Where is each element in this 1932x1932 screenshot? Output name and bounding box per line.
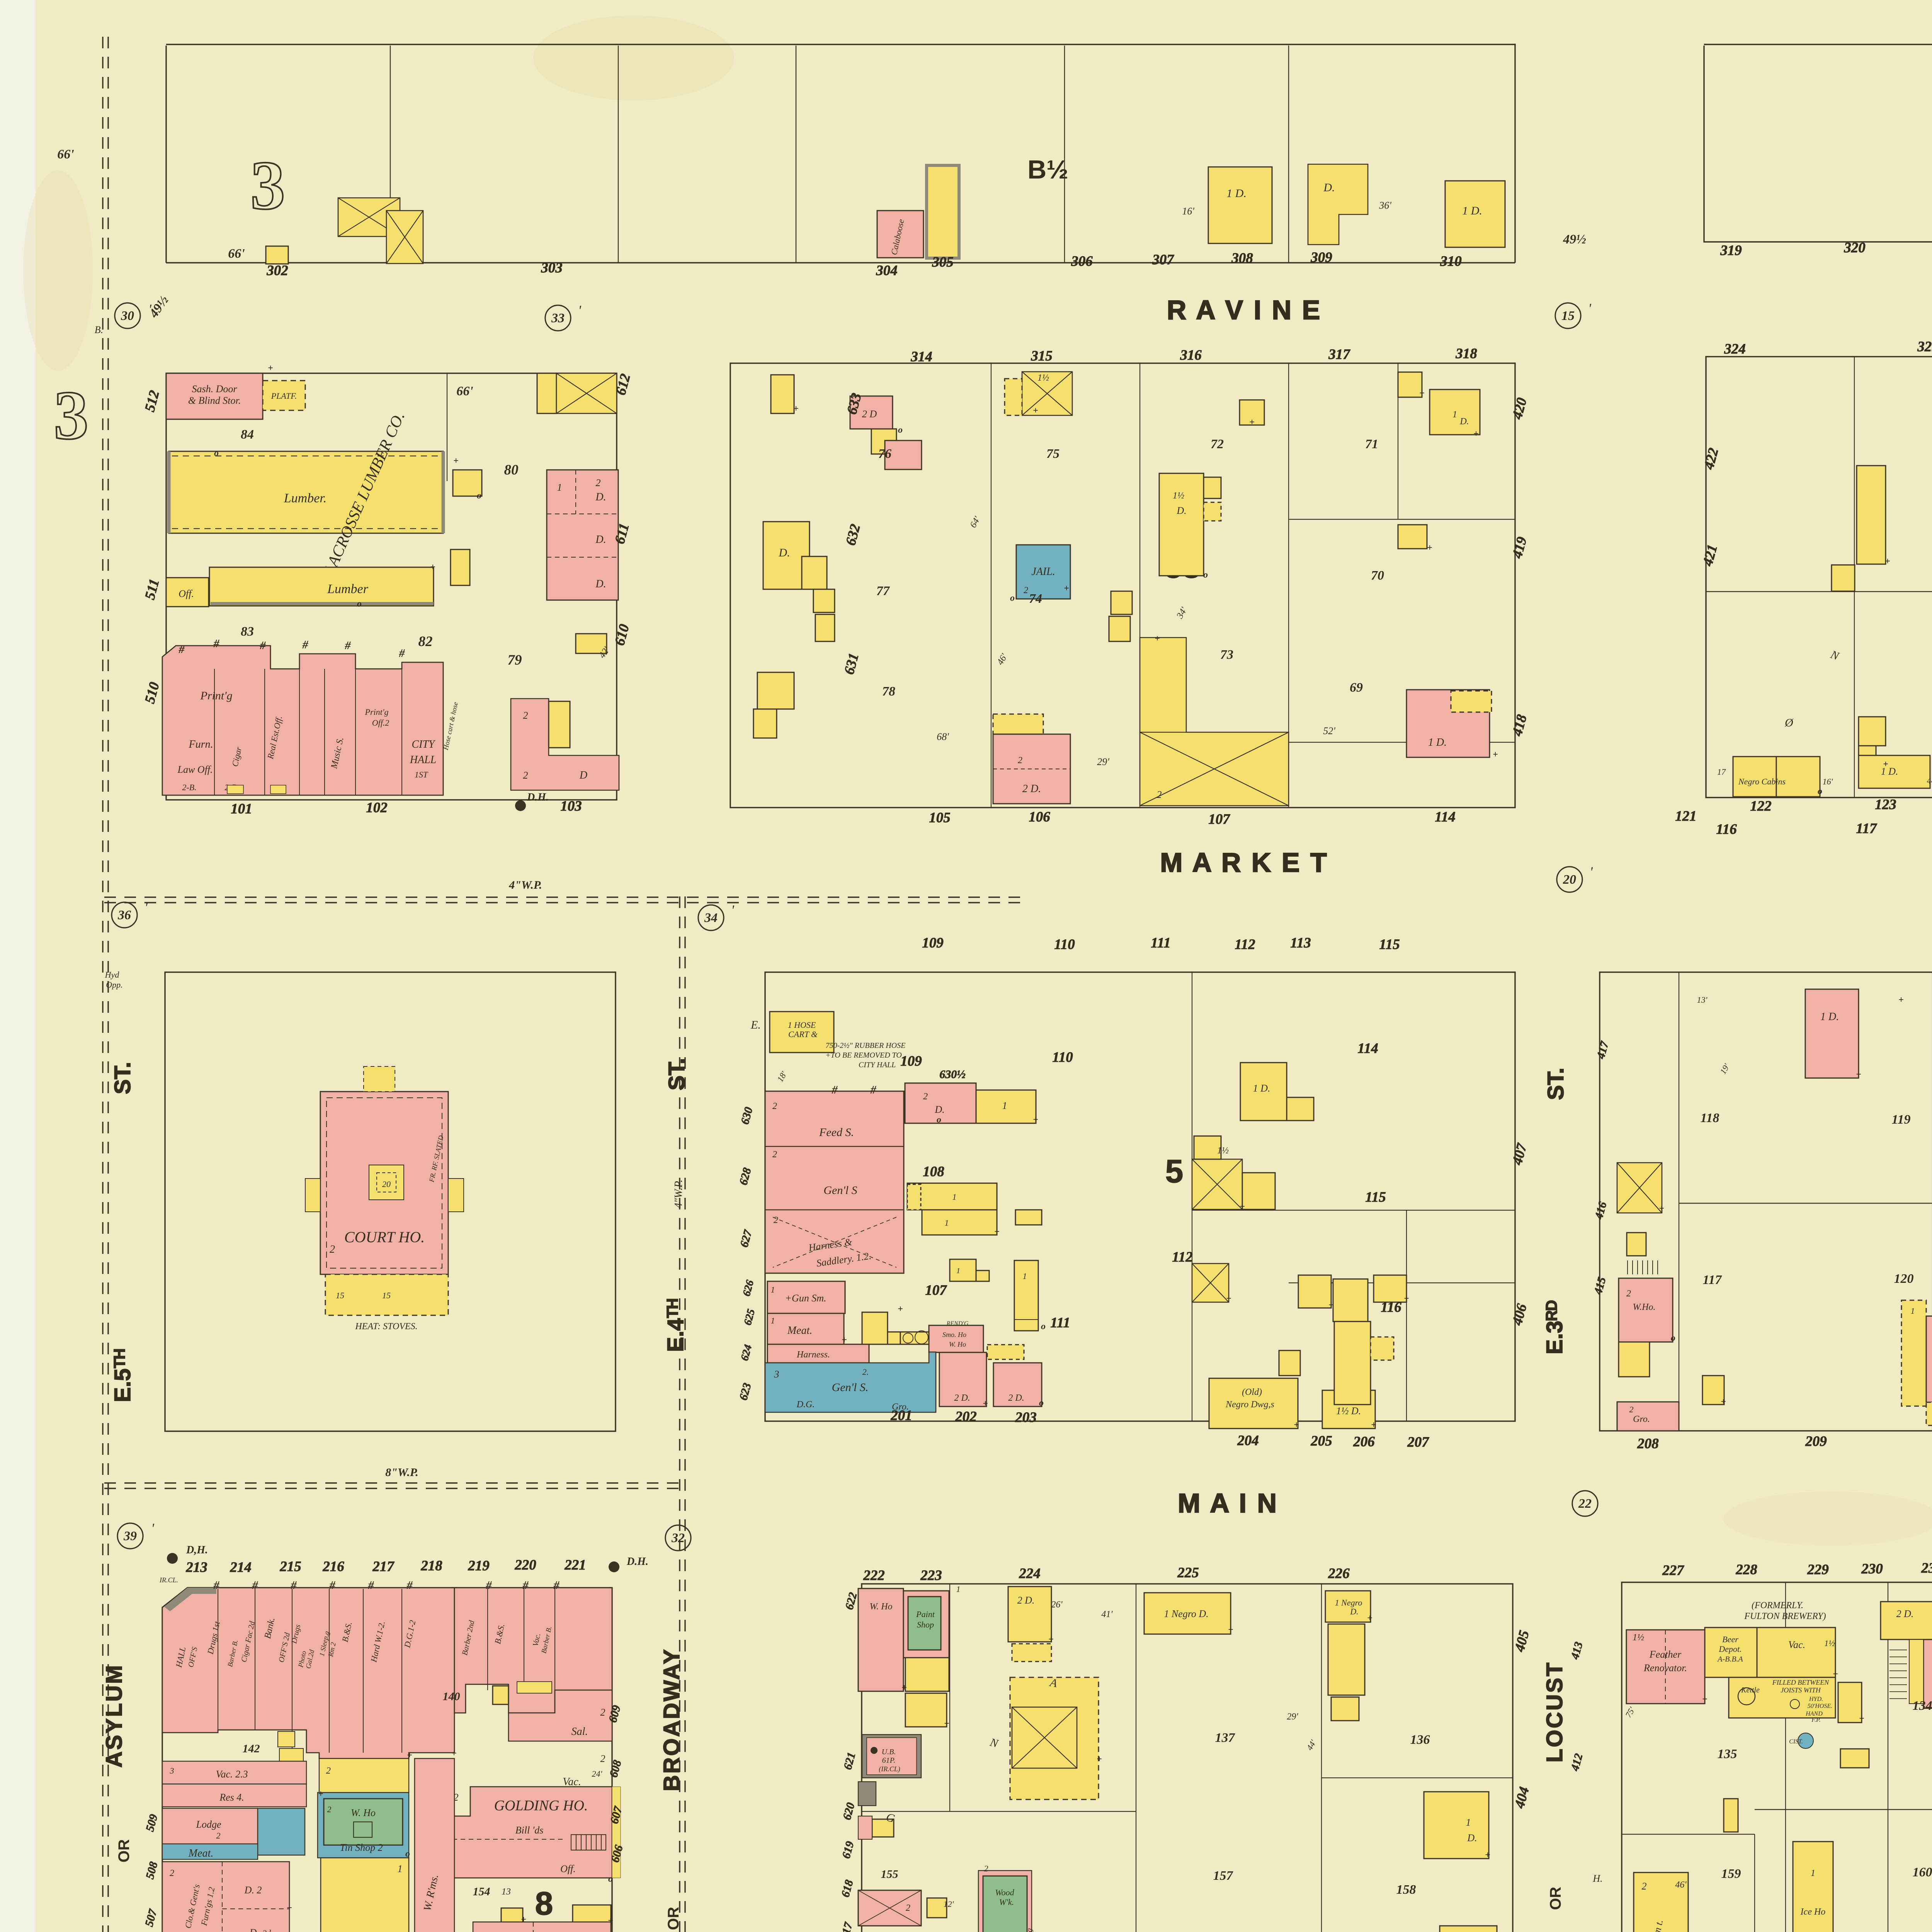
svg-text:+: + <box>1898 995 1904 1005</box>
svg-text:o: o <box>608 1874 613 1884</box>
svg-text:1: 1 <box>956 1267 960 1275</box>
svg-text:Negro Dwg,s: Negro Dwg,s <box>1225 1400 1274 1410</box>
svg-text:8: 8 <box>535 1885 553 1922</box>
svg-text:2: 2 <box>596 477 601 488</box>
svg-text:+: + <box>1404 1294 1409 1304</box>
svg-text:223: 223 <box>920 1568 942 1583</box>
svg-text:Vac.: Vac. <box>563 1776 581 1788</box>
svg-text:FILLED BETWEEN: FILLED BETWEEN <box>1772 1679 1829 1686</box>
svg-text:Lumber: Lumber <box>327 582 369 596</box>
svg-text:#: # <box>213 637 220 650</box>
svg-text:2: 2 <box>327 1804 332 1814</box>
svg-text:+: + <box>608 1916 613 1926</box>
svg-text:1: 1 <box>1466 1817 1471 1828</box>
svg-text:Paint: Paint <box>916 1609 935 1619</box>
svg-text:214: 214 <box>230 1560 252 1575</box>
svg-text:2: 2 <box>1629 1405 1634 1414</box>
svg-text:82: 82 <box>418 634 433 650</box>
svg-text:JAIL.: JAIL. <box>1031 566 1055 578</box>
svg-text:+: + <box>1659 1204 1664 1214</box>
svg-text:217: 217 <box>372 1559 395 1575</box>
svg-text:Off.: Off. <box>560 1863 576 1874</box>
svg-text:1 D.: 1 D. <box>1226 187 1247 200</box>
svg-text:52': 52' <box>1323 725 1335 736</box>
svg-text:+: + <box>1328 1300 1334 1310</box>
svg-text:+: + <box>1048 1634 1054 1645</box>
svg-text:+: + <box>1859 1714 1864 1724</box>
svg-text:(Old): (Old) <box>1242 1387 1262 1397</box>
svg-text:207: 207 <box>1407 1434 1429 1450</box>
svg-text:#: # <box>302 638 309 651</box>
svg-text:1ST: 1ST <box>415 770 429 779</box>
svg-text:Tin Shop 2: Tin Shop 2 <box>340 1842 383 1853</box>
svg-text:(FORMERLY.: (FORMERLY. <box>1752 1600 1803 1611</box>
svg-text:E.5ᵀᴴ: E.5ᵀᴴ <box>110 1349 135 1402</box>
svg-text:A-B.B.A: A-B.B.A <box>1717 1655 1743 1663</box>
svg-text:Sal.: Sal. <box>571 1726 588 1738</box>
svg-text:108: 108 <box>923 1164 944 1180</box>
svg-text:1: 1 <box>771 1285 775 1294</box>
svg-text:3: 3 <box>250 147 285 224</box>
svg-text:Harness.: Harness. <box>796 1350 830 1360</box>
svg-text:12': 12' <box>944 1899 954 1909</box>
svg-text:+: + <box>901 1683 907 1693</box>
svg-text:4"W.P.: 4"W.P. <box>673 1180 685 1208</box>
svg-text:116: 116 <box>1716 821 1737 837</box>
svg-text:66': 66' <box>456 384 473 398</box>
svg-text:306: 306 <box>1071 253 1093 269</box>
svg-text:o: o <box>1203 570 1208 580</box>
svg-text:+: + <box>793 404 799 414</box>
svg-text:o: o <box>898 425 903 435</box>
svg-text:M A I N: M A I N <box>1178 1488 1278 1518</box>
svg-text:140: 140 <box>443 1690 460 1703</box>
svg-text:1 D.: 1 D. <box>1462 204 1482 217</box>
svg-text:Depot.: Depot. <box>1718 1644 1742 1654</box>
svg-text:#: # <box>406 1579 413 1592</box>
svg-text:66': 66' <box>57 147 74 162</box>
svg-text:204: 204 <box>1237 1433 1259 1449</box>
svg-text:227: 227 <box>1662 1563 1684 1578</box>
svg-text:+: + <box>521 1915 526 1925</box>
svg-text:15: 15 <box>382 1291 391 1300</box>
svg-text:+: + <box>407 1750 412 1760</box>
svg-text:B½: B½ <box>1027 155 1068 184</box>
svg-text:Print'g: Print'g <box>200 689 232 702</box>
svg-text:66': 66' <box>228 247 245 261</box>
svg-text:2: 2 <box>984 1864 988 1873</box>
svg-text:77: 77 <box>876 584 890 598</box>
svg-text:W'k.: W'k. <box>999 1897 1014 1907</box>
svg-text:+: + <box>268 363 273 373</box>
svg-text:116: 116 <box>1381 1299 1401 1315</box>
svg-text:4"W.P.: 4"W.P. <box>509 879 542 891</box>
svg-text:111: 111 <box>1050 1315 1070 1331</box>
svg-text:135: 135 <box>1718 1747 1737 1761</box>
svg-text:32: 32 <box>671 1531 685 1545</box>
svg-text:29': 29' <box>1097 756 1109 767</box>
svg-text:+: + <box>1226 1294 1231 1304</box>
svg-text:112: 112 <box>1235 937 1255 952</box>
svg-text:#: # <box>252 1579 259 1592</box>
svg-text:E.4ᵀᴴ: E.4ᵀᴴ <box>663 1299 688 1352</box>
svg-text:': ' <box>151 1520 155 1536</box>
svg-text:+: + <box>1885 556 1890 566</box>
svg-text:2: 2 <box>523 770 528 781</box>
svg-text:HEAT: STOVES.: HEAT: STOVES. <box>355 1321 417 1332</box>
svg-text:70: 70 <box>1371 568 1384 583</box>
svg-text:#: # <box>522 1579 529 1592</box>
svg-text:203: 203 <box>1015 1410 1037 1425</box>
svg-text:26': 26' <box>1051 1600 1063 1610</box>
svg-text:122: 122 <box>1750 798 1772 814</box>
svg-text:8"W.P.: 8"W.P. <box>385 1466 418 1479</box>
svg-text:+: + <box>430 562 435 572</box>
svg-text:2d: 2d <box>262 1928 271 1932</box>
svg-text:CITY: CITY <box>412 738 436 750</box>
svg-text:318: 318 <box>1455 346 1477 362</box>
svg-text:103: 103 <box>560 798 582 814</box>
svg-text:2: 2 <box>600 1753 605 1764</box>
svg-text:GOLDING HO.: GOLDING HO. <box>494 1798 588 1814</box>
svg-text:2-B.: 2-B. <box>182 782 196 792</box>
svg-text:F.P.: F.P. <box>1811 1717 1820 1723</box>
svg-text:D.: D. <box>1176 505 1186 516</box>
svg-text:Kettle: Kettle <box>1741 1686 1760 1694</box>
svg-text:69: 69 <box>1350 680 1363 695</box>
svg-text:750-2½" RUBBER HOSE: 750-2½" RUBBER HOSE <box>826 1041 906 1050</box>
svg-text:BROADWAY: BROADWAY <box>659 1648 684 1791</box>
svg-text:OR: OR <box>1547 1887 1564 1910</box>
svg-text:36': 36' <box>1379 200 1391 211</box>
svg-text:107: 107 <box>1208 811 1230 827</box>
svg-text:324: 324 <box>1724 341 1746 357</box>
svg-text:76: 76 <box>878 447 891 461</box>
svg-text:D.: D. <box>778 546 790 559</box>
svg-text:201: 201 <box>890 1408 912 1423</box>
svg-text:#: # <box>291 1579 297 1592</box>
svg-text:215: 215 <box>279 1559 301 1575</box>
svg-text:111: 111 <box>1151 935 1170 951</box>
svg-text:1½: 1½ <box>1217 1146 1229 1156</box>
svg-text:+: + <box>451 1748 457 1759</box>
svg-text:#: # <box>260 639 266 652</box>
svg-text:o: o <box>357 599 362 609</box>
svg-text:33: 33 <box>551 311 565 325</box>
svg-text:+TO BE REMOVED TO: +TO BE REMOVED TO <box>825 1051 902 1060</box>
svg-text:61P.: 61P. <box>882 1756 896 1765</box>
svg-text:D.: D. <box>934 1104 944 1115</box>
svg-text:13': 13' <box>1697 995 1708 1005</box>
svg-text:68': 68' <box>937 731 949 742</box>
svg-text:630½: 630½ <box>939 1068 966 1081</box>
svg-text:+: + <box>1473 429 1479 439</box>
svg-text:+: + <box>1427 543 1432 553</box>
svg-text:o: o <box>405 1849 410 1859</box>
svg-text:W. Ho: W. Ho <box>351 1807 376 1818</box>
svg-text:1½: 1½ <box>1633 1633 1644 1643</box>
svg-text:+: + <box>1064 583 1069 594</box>
svg-text:115: 115 <box>1379 937 1400 952</box>
svg-text:o: o <box>1818 786 1822 796</box>
svg-text:79: 79 <box>508 652 522 668</box>
svg-text:+: + <box>1493 750 1498 760</box>
svg-text:HYD.: HYD. <box>1809 1696 1823 1702</box>
svg-text:Res 4.: Res 4. <box>219 1792 244 1803</box>
svg-text:41': 41' <box>1101 1609 1113 1619</box>
svg-text:2 D.: 2 D. <box>1008 1393 1024 1403</box>
svg-text:+: + <box>944 1719 949 1729</box>
svg-text:2: 2 <box>523 710 528 721</box>
svg-text:1 HOSE: 1 HOSE <box>788 1020 816 1030</box>
svg-text:316: 316 <box>1180 347 1202 363</box>
svg-text:154: 154 <box>473 1885 490 1898</box>
svg-text:Gro.: Gro. <box>1633 1414 1650 1424</box>
svg-text:1: 1 <box>1002 1100 1007 1111</box>
svg-text:2: 2 <box>1018 755 1022 765</box>
svg-text:121: 121 <box>1675 808 1697 824</box>
svg-text:2 D.: 2 D. <box>1896 1608 1914 1619</box>
svg-text:209: 209 <box>1805 1434 1827 1449</box>
svg-text:+: + <box>1228 1625 1233 1635</box>
svg-text:142: 142 <box>243 1742 260 1755</box>
svg-text:+: + <box>1367 1613 1372 1623</box>
svg-text:1 D.: 1 D. <box>1428 736 1447 748</box>
svg-text:119: 119 <box>1891 1112 1910 1127</box>
svg-text:+: + <box>1485 1850 1490 1860</box>
svg-text:220: 220 <box>514 1557 536 1573</box>
svg-text:W.Ho.: W.Ho. <box>1633 1302 1655 1312</box>
svg-text:13: 13 <box>502 1887 511 1897</box>
svg-text:Wood: Wood <box>995 1888 1014 1897</box>
svg-text:Gen'l S: Gen'l S <box>823 1184 857 1197</box>
svg-text:Renovator.: Renovator. <box>1643 1662 1687 1673</box>
svg-text:ST.: ST. <box>664 1058 689 1090</box>
svg-text:1 Negro D.: 1 Negro D. <box>1164 1608 1208 1619</box>
svg-text:& Blind Stor.: & Blind Stor. <box>188 395 241 406</box>
svg-text:Meat.: Meat. <box>787 1325 813 1337</box>
svg-text:Off.: Off. <box>179 588 194 599</box>
svg-text:Vac. 2.3: Vac. 2.3 <box>216 1769 248 1780</box>
svg-text:1: 1 <box>771 1316 775 1325</box>
svg-text:E.: E. <box>750 1019 761 1031</box>
svg-text:225: 225 <box>1177 1565 1199 1581</box>
svg-text:213: 213 <box>185 1560 207 1575</box>
svg-text:219: 219 <box>468 1558 490 1574</box>
svg-text:1 D.: 1 D. <box>1820 1011 1839 1023</box>
svg-text:B.: B. <box>95 324 103 335</box>
svg-text:Off.2: Off.2 <box>372 718 389 728</box>
svg-text:2: 2 <box>326 1766 331 1776</box>
svg-text:71: 71 <box>1365 437 1378 451</box>
svg-text:109: 109 <box>900 1053 922 1069</box>
svg-text:+: + <box>898 1304 903 1314</box>
svg-text:2: 2 <box>772 1101 777 1111</box>
svg-text:W. Ho: W. Ho <box>869 1602 892 1612</box>
svg-text:E.3ᴿᴰ: E.3ᴿᴰ <box>1542 1300 1567 1354</box>
svg-text:JOISTS WITH: JOISTS WITH <box>1781 1686 1821 1694</box>
svg-text:1½: 1½ <box>1824 1638 1835 1648</box>
svg-text:205: 205 <box>1310 1433 1332 1449</box>
svg-text:2: 2 <box>906 1903 910 1913</box>
svg-text:W. Ho: W. Ho <box>949 1340 966 1348</box>
svg-text:Ø: Ø <box>1784 716 1794 729</box>
svg-text:208: 208 <box>1637 1436 1659 1452</box>
svg-text:2.: 2. <box>862 1367 869 1377</box>
svg-text:1: 1 <box>1452 410 1457 420</box>
svg-text:202: 202 <box>955 1409 977 1425</box>
svg-text:Lodge: Lodge <box>196 1819 221 1830</box>
svg-text:Law Off.: Law Off. <box>177 764 213 775</box>
svg-text:o: o <box>214 448 219 458</box>
svg-text:#: # <box>486 1579 492 1592</box>
svg-text:226: 226 <box>1328 1566 1350 1582</box>
svg-text:Ice Ho: Ice Ho <box>1800 1907 1826 1917</box>
svg-text:2: 2 <box>772 1150 777 1160</box>
svg-text:224: 224 <box>1019 1566 1041 1582</box>
svg-text:22: 22 <box>1578 1497 1592 1511</box>
svg-text:LOCUST: LOCUST <box>1542 1661 1567 1762</box>
svg-text:2: 2 <box>774 1215 778 1225</box>
svg-text:#: # <box>179 643 185 656</box>
svg-text:1: 1 <box>1023 1271 1027 1281</box>
svg-text:IR.CL.: IR.CL. <box>159 1576 178 1584</box>
svg-text:D.G.: D.G. <box>796 1400 815 1410</box>
svg-text:+: + <box>1856 1070 1861 1080</box>
svg-text:304: 304 <box>876 263 898 279</box>
svg-text:#: # <box>832 1083 838 1096</box>
svg-text:+: + <box>1721 1397 1726 1407</box>
svg-text:5: 5 <box>1165 1153 1184 1189</box>
svg-text:1 Negro: 1 Negro <box>1335 1598 1362 1607</box>
svg-text:Negro Cabins: Negro Cabins <box>1738 777 1786 786</box>
svg-text:1: 1 <box>1911 1306 1915 1316</box>
svg-text:309: 309 <box>1310 250 1332 265</box>
svg-text:222: 222 <box>863 1568 885 1583</box>
svg-text:OR: OR <box>665 1907 682 1930</box>
svg-text:310: 310 <box>1440 253 1462 269</box>
svg-text:109: 109 <box>922 935 944 951</box>
svg-text:D.H.: D.H. <box>527 791 549 803</box>
svg-text:2 D: 2 D <box>862 408 877 420</box>
svg-text:H.: H. <box>1592 1873 1602 1884</box>
svg-text:Lumber.: Lumber. <box>284 491 327 505</box>
svg-text:#: # <box>368 1579 374 1592</box>
svg-text:+: + <box>1240 1202 1245 1212</box>
svg-text:#: # <box>345 639 351 652</box>
svg-text:123: 123 <box>1875 797 1896 813</box>
svg-text:1: 1 <box>557 482 562 493</box>
svg-text:117: 117 <box>1702 1273 1722 1287</box>
svg-text:OR: OR <box>116 1839 133 1862</box>
svg-text:U.B.: U.B. <box>882 1748 896 1756</box>
svg-text:83: 83 <box>241 624 254 639</box>
svg-text:106: 106 <box>1029 809 1050 825</box>
svg-text:2: 2 <box>1626 1289 1631 1299</box>
svg-text:110: 110 <box>1052 1049 1073 1065</box>
svg-text:2 D.: 2 D. <box>1022 783 1041 795</box>
svg-text:16': 16' <box>1823 777 1833 786</box>
svg-text:317: 317 <box>1328 347 1350 362</box>
svg-text:': ' <box>1588 301 1592 316</box>
svg-text:R A V I N E: R A V I N E <box>1167 295 1322 325</box>
svg-text:46': 46' <box>1675 1880 1687 1890</box>
svg-text:Opp.: Opp. <box>106 980 122 990</box>
svg-text:49½: 49½ <box>1563 232 1586 247</box>
svg-text:80: 80 <box>504 462 519 478</box>
svg-text:160: 160 <box>1913 1865 1932 1879</box>
svg-text:120: 120 <box>1894 1272 1914 1286</box>
svg-text:29': 29' <box>1287 1712 1298 1722</box>
svg-text:#: # <box>329 1579 336 1592</box>
svg-text:+: + <box>1294 1420 1299 1430</box>
svg-text:101: 101 <box>231 801 252 817</box>
svg-text:#: # <box>870 1083 877 1096</box>
svg-text:2: 2 <box>923 1092 928 1102</box>
svg-text:308: 308 <box>1231 250 1253 266</box>
svg-text:24': 24' <box>592 1769 602 1779</box>
svg-text:o: o <box>1041 1321 1046 1332</box>
svg-text:1: 1 <box>398 1863 403 1874</box>
svg-text:118: 118 <box>1700 1111 1719 1125</box>
svg-text:D.: D. <box>1459 417 1469 427</box>
svg-text:74: 74 <box>1029 592 1042 606</box>
svg-text:D: D <box>579 769 587 781</box>
svg-text:84: 84 <box>241 427 254 442</box>
svg-text:73: 73 <box>1220 648 1233 662</box>
svg-text:1: 1 <box>945 1218 949 1228</box>
svg-text:Hyd: Hyd <box>105 970 120 980</box>
svg-text:Beer: Beer <box>1722 1634 1738 1644</box>
svg-text:102: 102 <box>366 800 388 816</box>
svg-text:o: o <box>937 1115 941 1125</box>
svg-text:112: 112 <box>1172 1249 1192 1265</box>
svg-text:206: 206 <box>1353 1434 1375 1450</box>
svg-text:105: 105 <box>929 810 951 826</box>
svg-text:134: 134 <box>1913 1699 1932 1713</box>
svg-text:+: + <box>994 1227 1000 1237</box>
svg-text:157: 157 <box>1213 1869 1234 1883</box>
svg-text:315: 315 <box>1031 348 1053 364</box>
svg-text:15: 15 <box>336 1291 344 1300</box>
svg-text:ASYLUM: ASYLUM <box>102 1664 127 1768</box>
svg-text:+: + <box>842 1335 847 1345</box>
svg-text:HALL: HALL <box>410 754 436 766</box>
svg-text:2: 2 <box>170 1868 174 1878</box>
svg-text:D.H.: D.H. <box>626 1556 648 1568</box>
svg-text:2: 2 <box>1642 1881 1647 1892</box>
svg-text:D.: D. <box>595 578 606 590</box>
svg-text:107: 107 <box>925 1282 947 1298</box>
svg-text:CIST.: CIST. <box>1789 1738 1803 1745</box>
svg-text:1: 1 <box>952 1192 957 1202</box>
svg-text:#: # <box>553 1579 560 1592</box>
svg-text:+: + <box>1033 1115 1038 1125</box>
svg-text:15: 15 <box>1561 309 1575 323</box>
svg-text:+: + <box>1033 406 1038 416</box>
svg-text:228: 228 <box>1735 1562 1757 1578</box>
svg-text:16': 16' <box>1182 206 1194 217</box>
svg-text:113: 113 <box>1290 935 1311 951</box>
svg-text:': ' <box>731 902 735 918</box>
svg-text:50'HOSE.: 50'HOSE. <box>1808 1703 1832 1709</box>
svg-text:': ' <box>1590 864 1593 879</box>
svg-text:Feed S.: Feed S. <box>819 1126 854 1139</box>
svg-text:115: 115 <box>1365 1189 1386 1205</box>
svg-text:CITY HALL: CITY HALL <box>859 1061 896 1069</box>
svg-text:1½: 1½ <box>1173 491 1184 501</box>
svg-text:305: 305 <box>932 254 954 270</box>
